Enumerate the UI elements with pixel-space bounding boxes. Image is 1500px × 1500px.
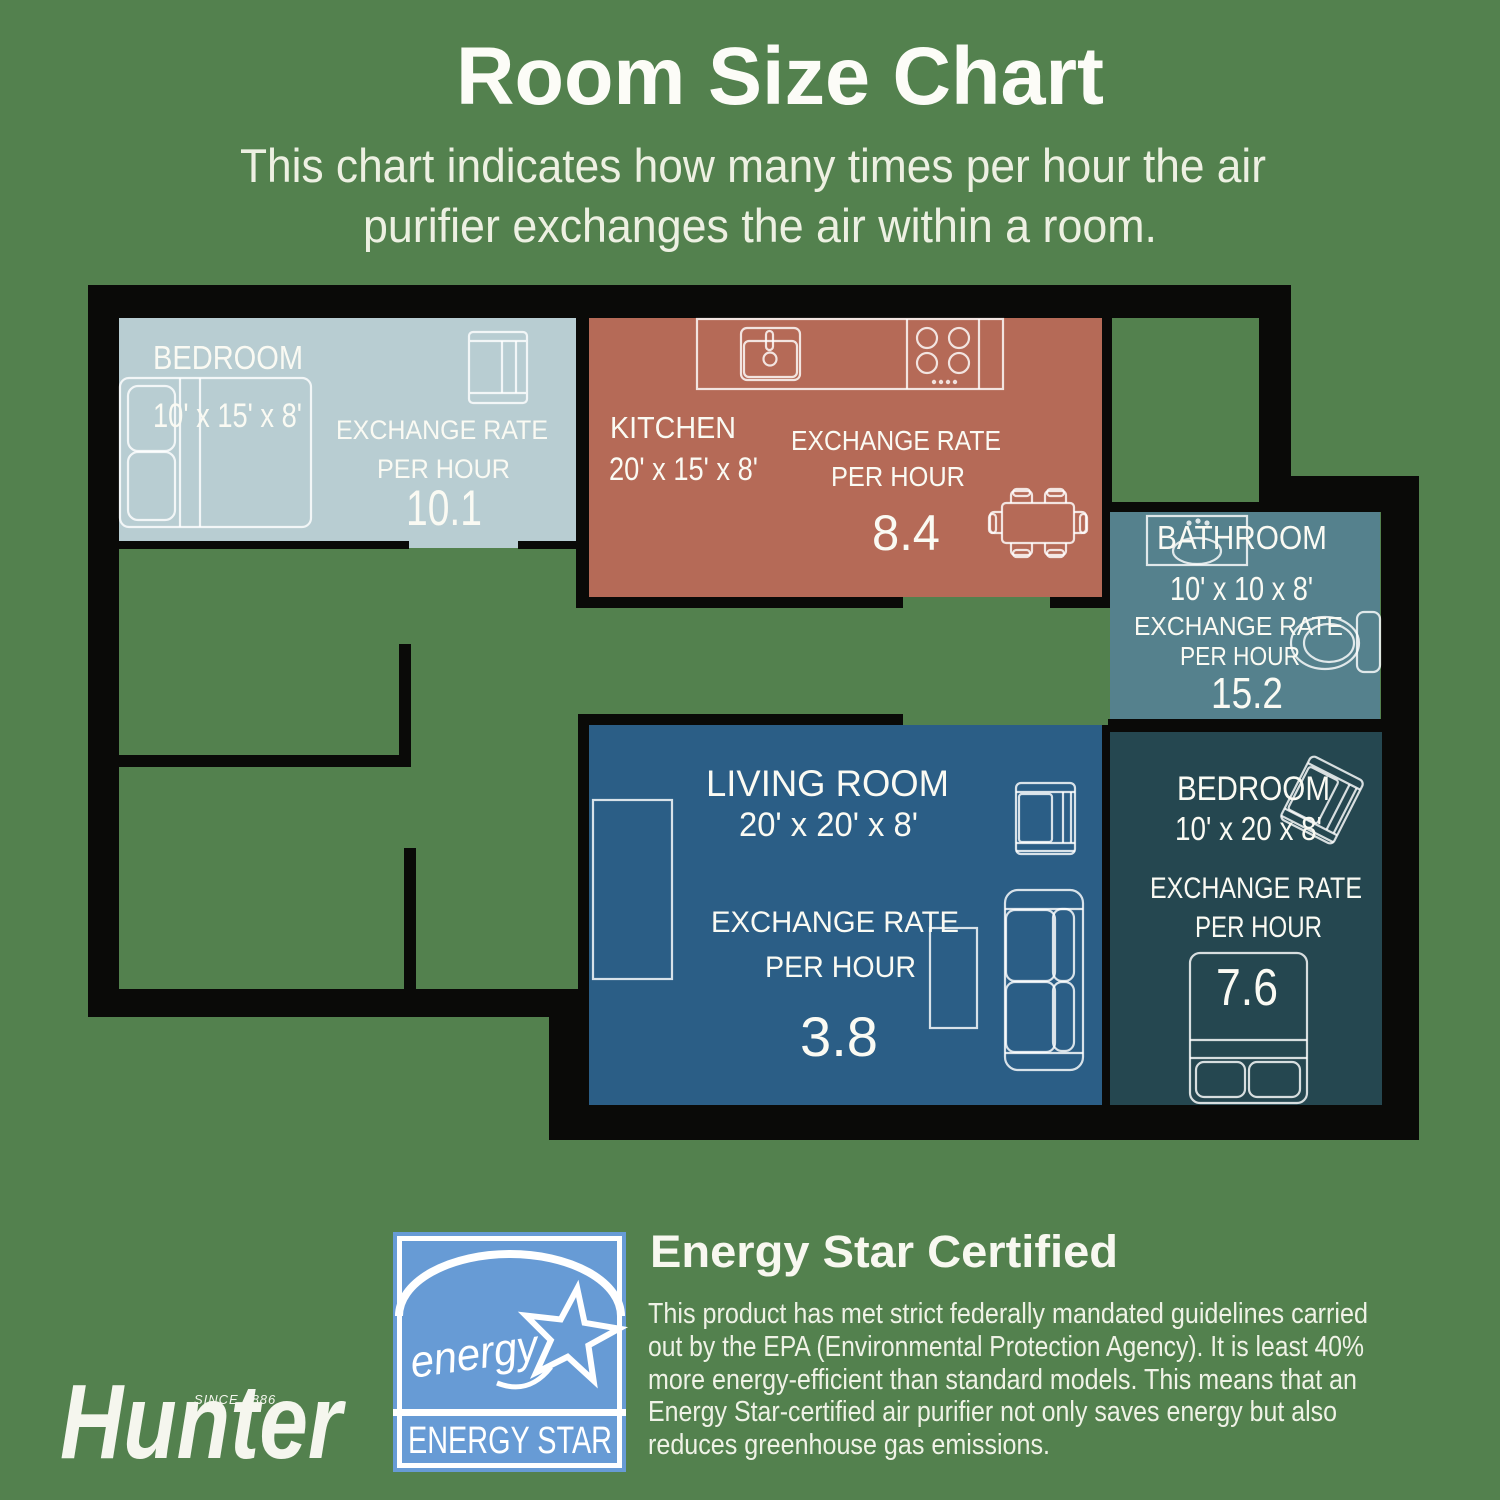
svg-text:KITCHEN: KITCHEN (610, 410, 736, 445)
svg-text:This chart indicates how many: This chart indicates how many times per … (240, 139, 1266, 192)
svg-text:EXCHANGE RATE: EXCHANGE RATE (711, 906, 959, 939)
svg-text:BATHROOM: BATHROOM (1157, 519, 1327, 556)
svg-text:Energy Star-certified air puri: Energy Star-certified air purifier not o… (648, 1396, 1337, 1428)
svg-text:10' x 20 x 8': 10' x 20 x 8' (1175, 810, 1322, 847)
svg-text:10' x 15' x 8': 10' x 15' x 8' (153, 397, 302, 435)
svg-text:10.1: 10.1 (406, 480, 482, 536)
svg-text:more energy-efficient than sta: more energy-efficient than standard mode… (648, 1364, 1357, 1396)
svg-text:BEDROOM: BEDROOM (1177, 770, 1330, 808)
svg-text:7.6: 7.6 (1216, 959, 1278, 1017)
svg-text:PER HOUR: PER HOUR (831, 461, 965, 492)
svg-text:SINCE 1886: SINCE 1886 (194, 1392, 276, 1407)
svg-text:PER HOUR: PER HOUR (1195, 911, 1322, 944)
svg-text:15.2: 15.2 (1211, 669, 1283, 718)
svg-text:out by the EPA (Environmental: out by the EPA (Environmental Protection… (648, 1331, 1364, 1363)
svg-text:Hunter: Hunter (60, 1363, 347, 1481)
svg-text:EXCHANGE RATE: EXCHANGE RATE (1150, 872, 1362, 905)
svg-text:10' x 10 x 8': 10' x 10 x 8' (1170, 570, 1313, 607)
svg-text:Room Size Chart: Room Size Chart (456, 31, 1104, 122)
svg-text:20' x 20' x 8': 20' x 20' x 8' (739, 806, 918, 844)
svg-text:This product has met strict fe: This product has met strict federally ma… (648, 1298, 1368, 1330)
svg-text:LIVING ROOM: LIVING ROOM (706, 763, 949, 804)
svg-text:BEDROOM: BEDROOM (153, 339, 303, 376)
svg-text:Energy Star Certified: Energy Star Certified (650, 1226, 1118, 1277)
svg-text:PER HOUR: PER HOUR (1180, 641, 1300, 671)
svg-text:purifier exchanges the air wit: purifier exchanges the air within a room… (363, 199, 1157, 252)
svg-text:PER HOUR: PER HOUR (765, 951, 916, 984)
svg-text:8.4: 8.4 (872, 505, 940, 561)
svg-text:EXCHANGE RATE: EXCHANGE RATE (336, 415, 548, 445)
svg-text:20' x 15' x 8': 20' x 15' x 8' (609, 451, 758, 487)
svg-text:reduces greenhouse gas emissio: reduces greenhouse gas emissions. (648, 1429, 1050, 1461)
svg-text:EXCHANGE RATE: EXCHANGE RATE (791, 425, 1001, 456)
svg-text:ENERGY STAR: ENERGY STAR (408, 1420, 612, 1462)
svg-text:3.8: 3.8 (800, 1005, 878, 1068)
svg-text:EXCHANGE RATE: EXCHANGE RATE (1134, 611, 1343, 641)
